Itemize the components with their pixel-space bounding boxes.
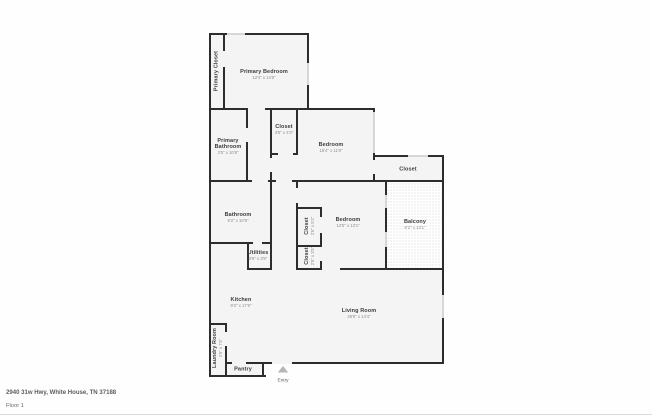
entry-label: Entry — [277, 377, 288, 383]
wall-segment — [442, 155, 444, 183]
wall-segment — [247, 268, 272, 270]
wall-segment — [293, 153, 298, 155]
wall-segment — [209, 33, 211, 377]
room-label-closet-right: Closet — [399, 166, 416, 172]
room-dims: 3'5" x 10'8" — [213, 150, 244, 155]
room-label-primary-closet: Primary Closet — [213, 51, 219, 91]
room-label-utilities: Utilities 3'6" x 3'9" — [248, 249, 269, 261]
room-dims: 9'2" x 10'6" — [225, 218, 252, 223]
room-dims: 15'4" x 11'0" — [319, 148, 344, 153]
wall-segment — [225, 346, 227, 377]
room-label-primary-bathroom: Primary Bathroom 3'5" x 10'8" — [213, 137, 244, 155]
window — [442, 295, 444, 318]
room-name: Kitchen — [231, 296, 252, 302]
room-dims: 8'2" x 13'1" — [404, 225, 426, 230]
wall-segment — [270, 180, 272, 242]
window — [227, 33, 245, 35]
room-dims: 3'6" x 3'9" — [248, 256, 269, 261]
room-name: Laundry Room — [211, 328, 217, 368]
window — [307, 63, 309, 85]
wall-segment — [246, 362, 264, 364]
wall-segment — [209, 180, 252, 182]
wall-segment — [209, 108, 247, 110]
room-dims: 2'6" x 7'6" — [218, 328, 223, 368]
wall-segment — [307, 108, 375, 110]
floorplan-drawing — [0, 0, 652, 416]
room-label-kitchen: Kitchen 9'2" x 17'6" — [231, 296, 252, 308]
wall-segment — [209, 375, 266, 377]
wall-segment — [340, 268, 444, 270]
wall-segment — [442, 181, 444, 270]
wall-segment — [262, 362, 264, 377]
room-label-bedroom-mid: Bedroom 12'5" x 13'1" — [336, 216, 361, 228]
wall-segment — [296, 108, 298, 155]
wall-segment — [320, 233, 322, 247]
room-label-closet-mid-upper: Closet 2'6" x 5'2" — [303, 217, 315, 236]
wall-segment — [246, 108, 248, 128]
room-name: Closet — [303, 247, 309, 266]
wall-segment — [292, 362, 444, 364]
room-dims: 26'8" x 14'4" — [342, 314, 376, 319]
wall-segment — [225, 323, 227, 332]
window — [373, 112, 375, 153]
room-name: Primary Bathroom — [213, 137, 244, 149]
room-dims: 3'5" x 4'3" — [275, 130, 294, 135]
wall-segment — [385, 181, 387, 270]
room-dims: 9'2" x 17'6" — [231, 303, 252, 308]
entry-text: Entry — [277, 377, 288, 383]
room-label-bedroom-top: Bedroom 15'4" x 11'0" — [319, 141, 344, 153]
wall-segment — [262, 242, 272, 244]
window — [408, 155, 428, 157]
wall-segment — [209, 323, 227, 325]
room-name: Pantry — [234, 366, 252, 372]
floor-label: Floor 1 — [6, 402, 24, 409]
window — [385, 232, 387, 247]
floorplan-page: Primary Closet Primary Bedroom 12'4" x 1… — [0, 0, 652, 416]
window — [385, 195, 387, 208]
room-name: Primary Bedroom — [240, 68, 288, 74]
room-name: Balcony — [404, 218, 426, 224]
room-dims: 2'6" x 5'2" — [310, 217, 315, 236]
room-label-balcony: Balcony 8'2" x 13'1" — [404, 218, 426, 230]
wall-segment — [270, 153, 278, 155]
wall-segment — [209, 242, 253, 244]
room-name: Primary Closet — [213, 51, 219, 91]
wall-segment — [296, 207, 322, 209]
wall-segment — [270, 108, 272, 158]
wall-segment — [296, 181, 298, 188]
wall-segment — [296, 268, 320, 270]
room-name: Bathroom — [225, 211, 252, 217]
room-dims: 12'5" x 13'1" — [336, 223, 361, 228]
room-label-closet-mid-lower: Closet 2'6" x 3'5" — [303, 247, 315, 266]
room-name: Bedroom — [319, 141, 344, 147]
wall-segment — [223, 33, 225, 51]
room-name: Living Room — [342, 307, 376, 313]
room-name: Closet — [275, 123, 294, 129]
room-name: Closet — [399, 166, 416, 172]
room-label-closet-hall: Closet 3'5" x 4'3" — [275, 123, 294, 135]
wall-segment — [296, 203, 298, 270]
wall-segment — [270, 242, 272, 270]
room-name: Closet — [303, 217, 309, 236]
room-name: Bedroom — [336, 216, 361, 222]
entry-arrow-icon — [278, 366, 288, 373]
room-label-laundry-room: Laundry Room 2'6" x 7'6" — [211, 328, 223, 368]
room-name: Utilities — [248, 249, 269, 255]
room-dims: 12'4" x 14'5" — [240, 75, 288, 80]
room-dims: 2'6" x 3'5" — [310, 247, 315, 266]
wall-segment — [292, 180, 375, 182]
room-label-bathroom: Bathroom 9'2" x 10'6" — [225, 211, 252, 223]
wall-segment — [223, 67, 225, 110]
room-label-primary-bedroom: Primary Bedroom 12'4" x 14'5" — [240, 68, 288, 80]
wall-segment — [373, 180, 444, 182]
room-label-living-room: Living Room 26'8" x 14'4" — [342, 307, 376, 319]
room-label-pantry: Pantry — [234, 366, 252, 372]
property-address: 2940 31w Hwy, White House, TN 37188 — [6, 389, 116, 396]
wall-segment — [320, 207, 322, 217]
page-divider — [0, 414, 652, 415]
wall-segment — [246, 142, 248, 182]
wall-segment — [320, 261, 322, 270]
